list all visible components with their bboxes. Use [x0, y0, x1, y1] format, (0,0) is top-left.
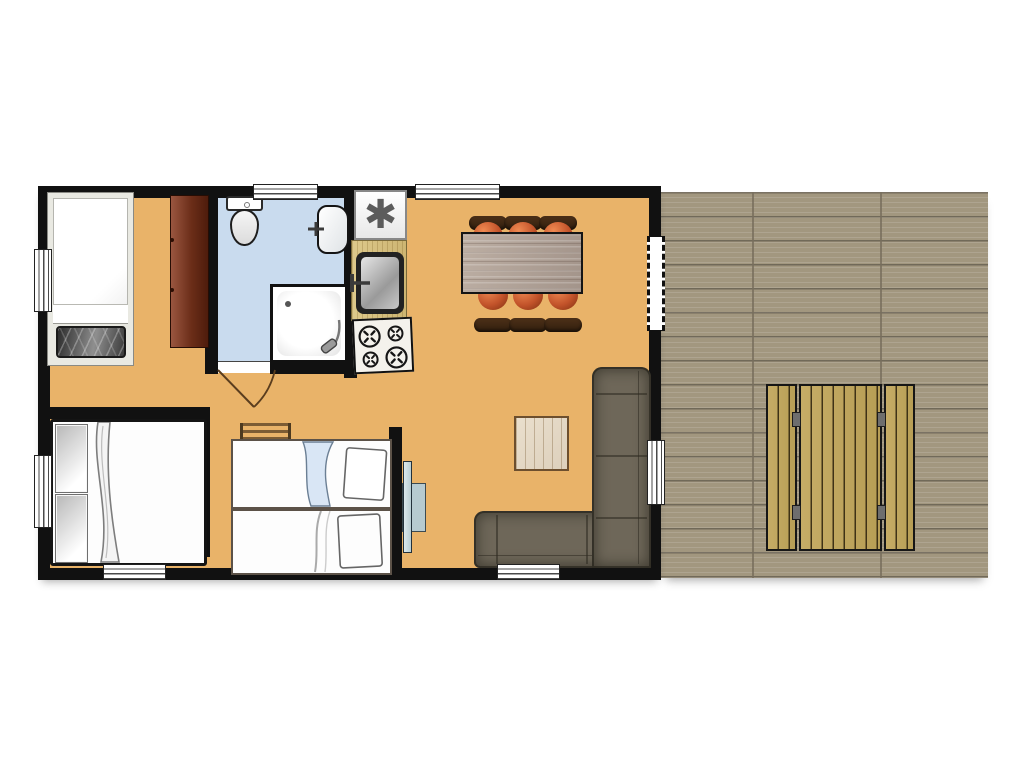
- dining-table: [461, 232, 583, 294]
- window: [103, 564, 166, 580]
- double-bedroom-north-wall: [44, 407, 210, 419]
- deck-plank-joint: [752, 192, 754, 578]
- picnic-bench-left: [766, 384, 797, 551]
- stove-burners-icon: [354, 319, 412, 372]
- picnic-bracket: [877, 505, 886, 520]
- double-bed-duvet-fold: [53, 422, 204, 563]
- window: [34, 455, 52, 528]
- washbasin: [317, 205, 349, 254]
- bunk-bed-upper: [231, 439, 392, 509]
- kitchen-sink: [356, 252, 404, 314]
- double-bed: [50, 419, 207, 566]
- bunk-lower-bedding: [233, 511, 390, 573]
- bathroom-door-threshold: [218, 361, 270, 373]
- single-bed-sheet-fold: [53, 304, 128, 324]
- kitchen-faucet-icon: [348, 272, 374, 294]
- picnic-bracket: [877, 412, 886, 427]
- shower-handset-icon: [309, 318, 343, 358]
- wardrobe-handle: [170, 288, 174, 292]
- window: [497, 564, 560, 580]
- picnic-table-top: [799, 384, 882, 551]
- picnic-bench-right: [884, 384, 915, 551]
- floor-plan-canvas: ✱: [0, 0, 1024, 768]
- bunk-bed-lower: [231, 509, 392, 575]
- wardrobe: [170, 195, 209, 348]
- deck-terrace: [661, 192, 988, 578]
- window: [34, 249, 52, 312]
- bunk-upper-bedding: [233, 441, 390, 507]
- shower-drain: [285, 301, 291, 307]
- chalet-unit: ✱: [38, 186, 661, 580]
- tv-screen: [403, 461, 412, 553]
- window: [415, 184, 500, 200]
- sliding-door: [647, 236, 665, 331]
- window: [253, 184, 318, 200]
- fridge-freezer: ✱: [354, 190, 407, 240]
- picnic-bracket: [792, 412, 801, 427]
- toilet-flush-button: [244, 202, 250, 208]
- wardrobe-handle: [170, 238, 174, 242]
- square-rug: [514, 416, 569, 471]
- shower-tray: [270, 284, 348, 363]
- single-bed: [47, 192, 134, 366]
- picnic-bracket: [792, 505, 801, 520]
- freezer-star-icon: ✱: [364, 195, 398, 235]
- window: [647, 440, 665, 505]
- stove: [352, 317, 414, 375]
- corner-sofa-right: [592, 367, 651, 568]
- single-bed-blanket: [56, 326, 126, 358]
